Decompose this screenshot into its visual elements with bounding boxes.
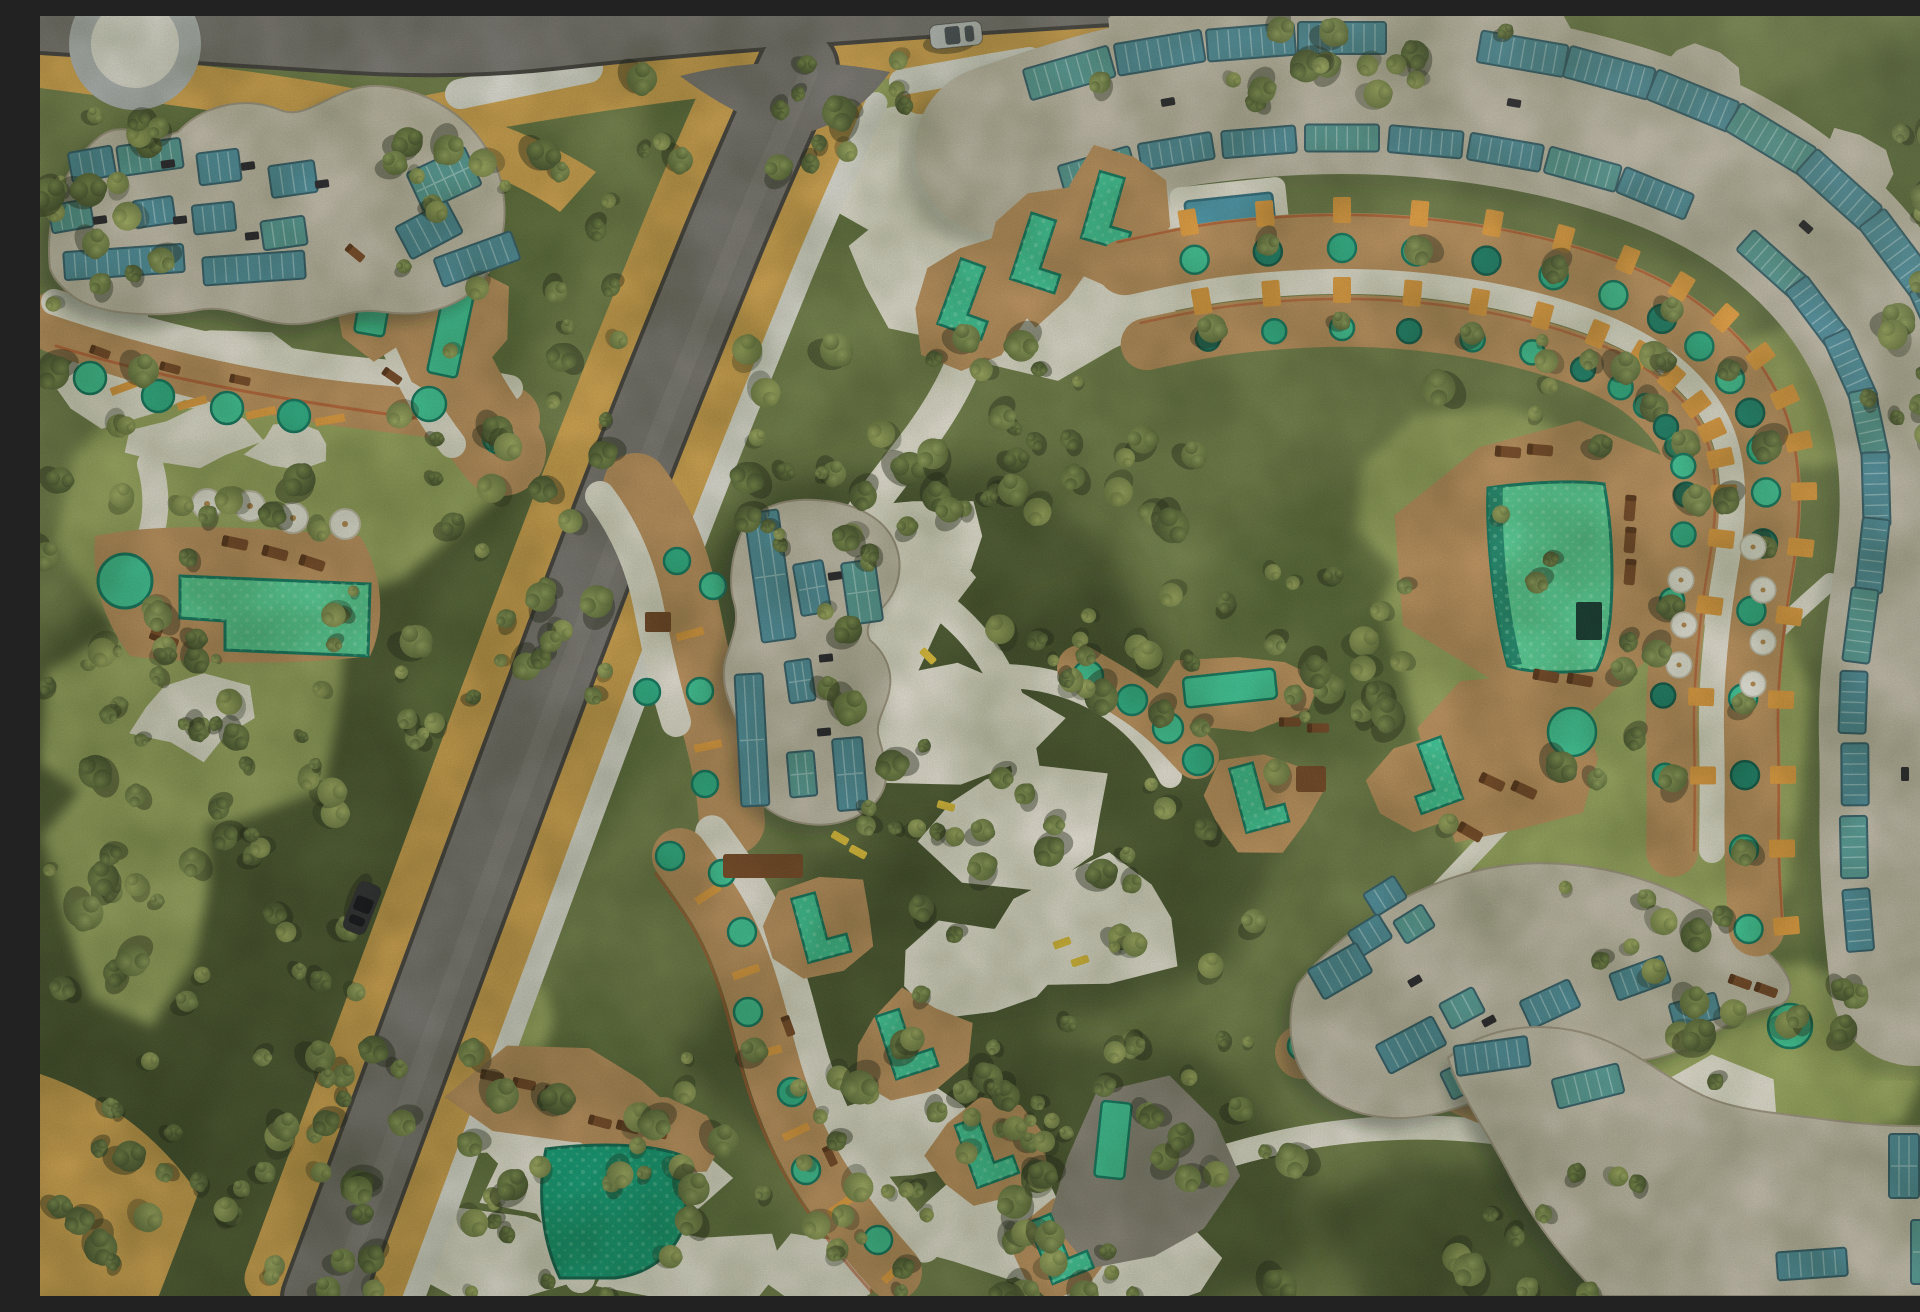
resort-aerial-render: Aerial 3D render — curvilinear eco-resor… — [40, 16, 1920, 1296]
render-grain-overlay — [40, 16, 1920, 1296]
aerial-screenshot: Bird's-eye architectural visualization o… — [40, 16, 1920, 1296]
